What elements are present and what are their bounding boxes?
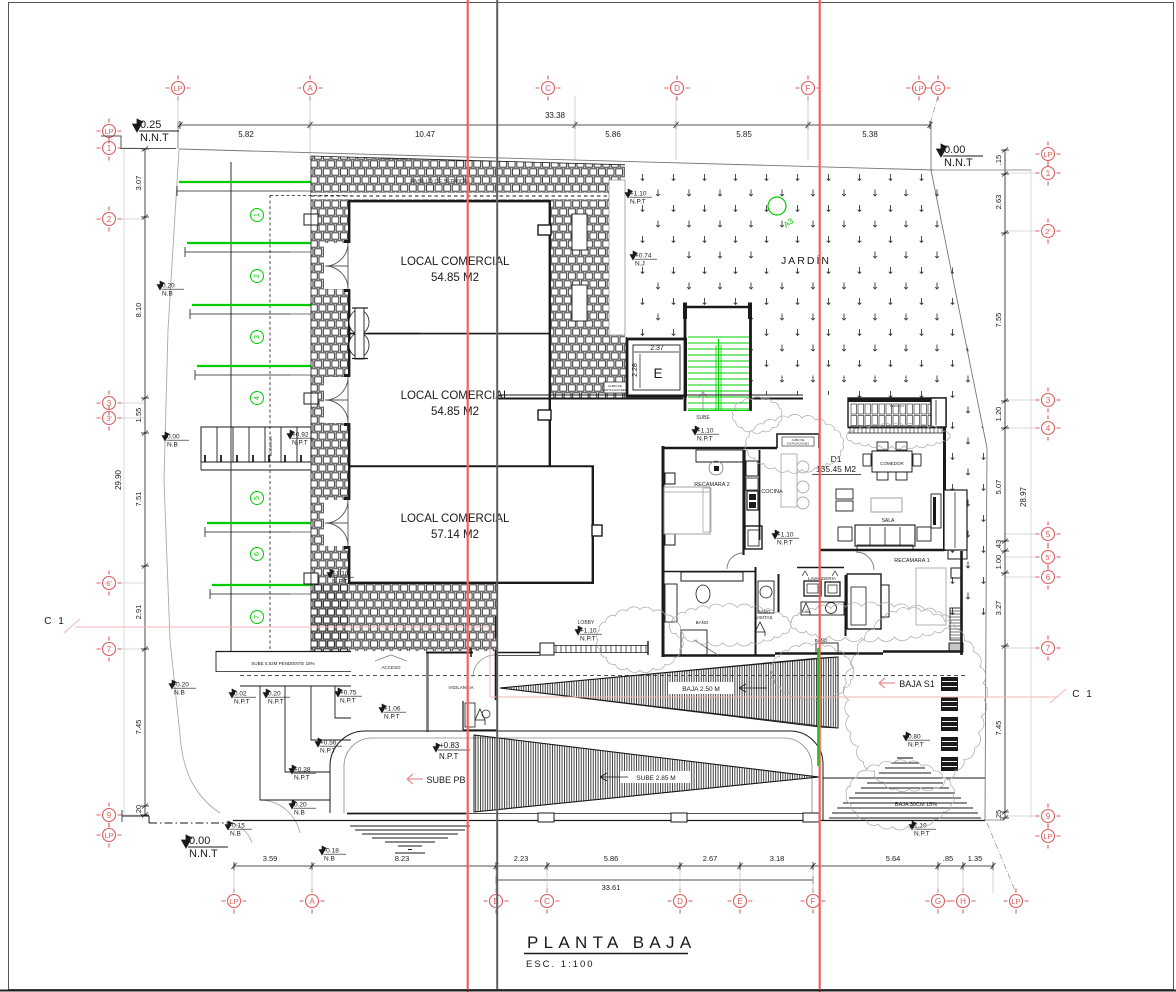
svg-text:5': 5' bbox=[1045, 553, 1051, 562]
svg-text:BAJA 30CM 15%: BAJA 30CM 15% bbox=[895, 802, 937, 808]
svg-text:F: F bbox=[806, 84, 811, 93]
svg-text:3': 3' bbox=[106, 414, 112, 423]
svg-text:5.86: 5.86 bbox=[604, 854, 619, 863]
svg-text:6: 6 bbox=[1046, 573, 1051, 582]
svg-text:7.55: 7.55 bbox=[994, 313, 1003, 328]
svg-text:5.38: 5.38 bbox=[862, 130, 878, 139]
svg-text:3.18: 3.18 bbox=[770, 854, 785, 863]
svg-text:1: 1 bbox=[1046, 169, 1051, 178]
svg-text:0.02: 0.02 bbox=[234, 691, 247, 698]
svg-text:N.P.T: N.P.T bbox=[294, 775, 310, 782]
svg-text:LP: LP bbox=[173, 84, 182, 93]
svg-text:N.N.T: N.N.T bbox=[944, 157, 973, 169]
svg-text:-0.20: -0.20 bbox=[174, 682, 189, 689]
svg-text:2: 2 bbox=[254, 274, 261, 278]
svg-text:N.P.T: N.P.T bbox=[908, 742, 924, 749]
svg-text:N.P.T: N.P.T bbox=[439, 752, 459, 761]
svg-text:5.86: 5.86 bbox=[605, 130, 621, 139]
svg-text:N.P.T: N.P.T bbox=[234, 699, 250, 706]
svg-text:3.07: 3.07 bbox=[134, 176, 143, 191]
svg-text:RECAMARA 1: RECAMARA 1 bbox=[894, 558, 929, 564]
svg-text:N.P.T: N.P.T bbox=[580, 636, 596, 643]
svg-text:VIGILANCIA: VIGILANCIA bbox=[448, 685, 473, 690]
svg-text:8.10: 8.10 bbox=[134, 303, 143, 318]
svg-text:G: G bbox=[935, 897, 941, 906]
svg-text:0.25: 0.25 bbox=[140, 119, 161, 131]
svg-text:135.45 M2: 135.45 M2 bbox=[816, 464, 856, 474]
svg-text:LP: LP bbox=[914, 84, 923, 93]
svg-text:10.47: 10.47 bbox=[415, 130, 436, 139]
svg-text:.85: .85 bbox=[943, 854, 953, 863]
svg-text:INSTALACIONES: INSTALACIONES bbox=[787, 442, 809, 446]
svg-text:7.45: 7.45 bbox=[994, 721, 1003, 736]
svg-text:5.82: 5.82 bbox=[238, 130, 254, 139]
svg-text:54.85 M2: 54.85 M2 bbox=[431, 406, 479, 418]
svg-text:7: 7 bbox=[254, 615, 261, 619]
svg-text:57.14 M2: 57.14 M2 bbox=[431, 529, 479, 541]
svg-text:LOBBY: LOBBY bbox=[578, 620, 595, 626]
svg-text:.20: .20 bbox=[134, 805, 143, 815]
svg-text:7.45: 7.45 bbox=[134, 720, 143, 735]
svg-text:.43: .43 bbox=[994, 540, 1003, 550]
svg-text:E: E bbox=[653, 366, 662, 381]
svg-text:LP: LP bbox=[1011, 897, 1020, 906]
svg-text:A: A bbox=[307, 84, 313, 93]
svg-text:C: C bbox=[544, 897, 550, 906]
svg-text:N.P.T: N.P.T bbox=[292, 440, 308, 447]
svg-text:5.07: 5.07 bbox=[994, 480, 1003, 495]
svg-text:0.80: 0.80 bbox=[908, 734, 921, 741]
svg-text:+1.10: +1.10 bbox=[332, 571, 349, 578]
svg-text:7: 7 bbox=[1046, 644, 1051, 653]
svg-text:D: D bbox=[677, 897, 683, 906]
svg-text:+1.10: +1.10 bbox=[697, 428, 714, 435]
svg-text:LOCAL COMERCIAL: LOCAL COMERCIAL bbox=[401, 390, 510, 402]
svg-text:N.P.T: N.P.T bbox=[268, 699, 284, 706]
svg-text:LP: LP bbox=[104, 831, 113, 840]
svg-text:RECAMARA 2: RECAMARA 2 bbox=[694, 482, 729, 488]
svg-text:33.38: 33.38 bbox=[545, 111, 566, 120]
svg-text:33.61: 33.61 bbox=[602, 883, 621, 892]
svg-text:29.90: 29.90 bbox=[114, 469, 123, 490]
svg-text:N.P.T: N.P.T bbox=[340, 698, 356, 705]
svg-text:LP: LP bbox=[104, 127, 113, 136]
svg-text:N.B: N.B bbox=[167, 442, 178, 449]
svg-text:+1.10: +1.10 bbox=[580, 628, 597, 635]
svg-text:.15: .15 bbox=[994, 155, 1003, 165]
svg-text:H: H bbox=[960, 897, 966, 906]
svg-text:+0.38: +0.38 bbox=[294, 767, 311, 774]
svg-text:LOCAL COMERCIAL: LOCAL COMERCIAL bbox=[401, 513, 510, 525]
svg-text:3: 3 bbox=[1046, 396, 1051, 405]
svg-text:D: D bbox=[674, 84, 680, 93]
svg-text:A: A bbox=[309, 897, 315, 906]
svg-text:JARDÍN: JARDÍN bbox=[781, 254, 831, 267]
svg-text:N.P.T: N.P.T bbox=[332, 579, 348, 586]
svg-text:+0.56: +0.56 bbox=[320, 740, 337, 747]
svg-text:3.27: 3.27 bbox=[994, 601, 1003, 616]
svg-text:+0.75: +0.75 bbox=[340, 690, 357, 697]
svg-text:VISITAS: VISITAS bbox=[756, 615, 773, 620]
svg-text:LP: LP bbox=[229, 897, 238, 906]
svg-text:2.23: 2.23 bbox=[514, 854, 529, 863]
svg-text:N.B: N.B bbox=[324, 856, 335, 863]
svg-text:SUBE PB: SUBE PB bbox=[426, 775, 465, 785]
svg-text:0.00: 0.00 bbox=[944, 144, 965, 156]
svg-text:7.51: 7.51 bbox=[134, 492, 143, 507]
svg-text:BODEGAS: BODEGAS bbox=[268, 436, 273, 456]
svg-text:54.85 M2: 54.85 M2 bbox=[431, 272, 479, 284]
svg-text:2.37: 2.37 bbox=[650, 345, 664, 352]
svg-text:9: 9 bbox=[107, 811, 112, 820]
svg-text:1.35: 1.35 bbox=[968, 854, 983, 863]
svg-text:N.P.T: N.P.T bbox=[384, 714, 400, 721]
svg-text:2.28: 2.28 bbox=[632, 363, 639, 377]
svg-text:COCINA: COCINA bbox=[761, 489, 783, 495]
svg-text:28.97: 28.97 bbox=[1019, 486, 1028, 507]
svg-text:+0.92: +0.92 bbox=[292, 432, 309, 439]
svg-text:LAVANDERIA: LAVANDERIA bbox=[808, 576, 836, 581]
svg-text:LOCAL COMERCIAL: LOCAL COMERCIAL bbox=[401, 256, 510, 268]
svg-text:1.55: 1.55 bbox=[134, 408, 143, 423]
svg-text:N.N.T: N.N.T bbox=[140, 132, 169, 144]
svg-text:4: 4 bbox=[1046, 424, 1051, 433]
svg-text:E: E bbox=[737, 897, 742, 906]
svg-text:1: 1 bbox=[254, 213, 261, 217]
svg-text:1.00: 1.00 bbox=[994, 555, 1003, 570]
svg-text:PLANTA BAJA: PLANTA BAJA bbox=[527, 933, 696, 952]
svg-text:6': 6' bbox=[106, 579, 112, 588]
svg-text:BAJA 2.50 M: BAJA 2.50 M bbox=[682, 686, 720, 693]
svg-text:5: 5 bbox=[254, 496, 261, 500]
svg-text:N.N.T: N.N.T bbox=[189, 848, 218, 860]
svg-text:BAÑO: BAÑO bbox=[696, 619, 709, 625]
svg-text:3.59: 3.59 bbox=[263, 854, 278, 863]
svg-text:-0.18: -0.18 bbox=[324, 848, 339, 855]
svg-text:INSTALACIONES: INSTALACIONES bbox=[603, 388, 627, 392]
svg-text:+1.06: +1.06 bbox=[384, 706, 401, 713]
svg-text:N.J: N.J bbox=[635, 261, 645, 268]
svg-text:N.P.T: N.P.T bbox=[777, 540, 793, 547]
svg-text:5: 5 bbox=[1046, 530, 1051, 539]
svg-text:-0.15: -0.15 bbox=[230, 823, 245, 830]
svg-text:LP: LP bbox=[1043, 150, 1052, 159]
svg-text:2': 2' bbox=[1045, 227, 1051, 236]
svg-text:LP: LP bbox=[1043, 832, 1052, 841]
svg-text:+0.83: +0.83 bbox=[439, 741, 460, 750]
svg-text:+0.74: +0.74 bbox=[635, 253, 652, 260]
svg-text:PASILLO DE SERVICIO: PASILLO DE SERVICIO bbox=[410, 179, 470, 185]
svg-text:7: 7 bbox=[107, 645, 112, 654]
svg-text:.25: .25 bbox=[994, 810, 1003, 820]
svg-text:3: 3 bbox=[254, 335, 261, 339]
svg-text:N.P.T: N.P.T bbox=[697, 436, 713, 443]
svg-text:C 1: C 1 bbox=[1072, 689, 1094, 700]
svg-text:+1.10: +1.10 bbox=[777, 532, 794, 539]
svg-text:PERGOLA: PERGOLA bbox=[890, 404, 905, 408]
svg-text:ESC. 1:100: ESC. 1:100 bbox=[526, 959, 595, 970]
svg-text:N.P.T: N.P.T bbox=[914, 831, 930, 838]
svg-text:SALA: SALA bbox=[882, 518, 895, 524]
svg-text:COMEDOR: COMEDOR bbox=[880, 461, 904, 466]
svg-text:N.B: N.B bbox=[162, 291, 173, 298]
svg-text:2.67: 2.67 bbox=[703, 854, 718, 863]
svg-text:BAÑO: BAÑO bbox=[815, 637, 828, 643]
svg-text:SUBE: SUBE bbox=[696, 415, 710, 421]
svg-text:0.20: 0.20 bbox=[162, 283, 175, 290]
svg-text:9: 9 bbox=[1046, 812, 1051, 821]
svg-text:4: 4 bbox=[254, 396, 261, 400]
svg-text:1.20: 1.20 bbox=[994, 407, 1003, 422]
svg-text:C 1: C 1 bbox=[44, 616, 66, 627]
svg-text:2.63: 2.63 bbox=[994, 195, 1003, 210]
svg-text:2: 2 bbox=[107, 215, 112, 224]
svg-text:0.00: 0.00 bbox=[167, 434, 180, 441]
svg-text:F: F bbox=[811, 897, 816, 906]
svg-text:SUBE 2.85 M: SUBE 2.85 M bbox=[636, 775, 675, 782]
svg-text:0.20: 0.20 bbox=[294, 802, 307, 809]
svg-text:ACCESO: ACCESO bbox=[381, 665, 401, 670]
svg-text:0.20: 0.20 bbox=[268, 691, 281, 698]
svg-text:5.85: 5.85 bbox=[736, 130, 752, 139]
svg-text:5.64: 5.64 bbox=[886, 854, 901, 863]
svg-text:N.B: N.B bbox=[174, 690, 185, 697]
svg-text:G: G bbox=[935, 84, 941, 93]
svg-text:SUBE 0.82M PENDIENTE 18%: SUBE 0.82M PENDIENTE 18% bbox=[251, 661, 314, 666]
svg-text:2.91: 2.91 bbox=[134, 605, 143, 620]
svg-text:1: 1 bbox=[107, 144, 112, 153]
svg-text:N.B: N.B bbox=[230, 831, 241, 838]
svg-text:6: 6 bbox=[254, 552, 261, 556]
svg-text:0.00: 0.00 bbox=[189, 835, 210, 847]
svg-text:BAJA S1: BAJA S1 bbox=[899, 679, 935, 689]
svg-text:N.B: N.B bbox=[294, 810, 305, 817]
svg-text:8.23: 8.23 bbox=[395, 854, 410, 863]
svg-text:C: C bbox=[545, 84, 551, 93]
